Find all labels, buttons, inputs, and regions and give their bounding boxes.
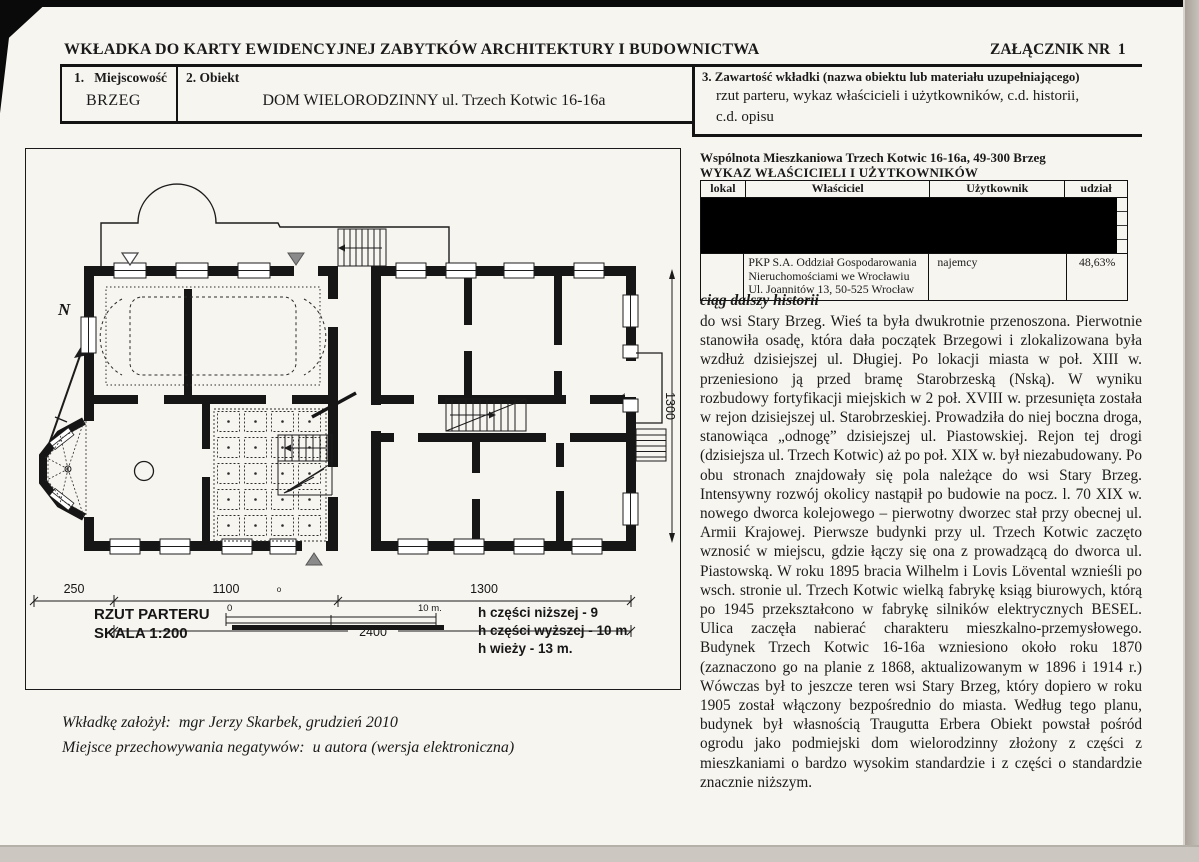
- exterior-stair-right: [636, 429, 666, 461]
- field-contents-label: 3. Zawartość wkładki (nazwa obiektu lub …: [702, 70, 1140, 85]
- field-table-left-border: [60, 67, 62, 121]
- owners-list-title: WYKAZ WŁAŚCICIELI I UŻYTKOWNIKÓW: [700, 165, 978, 181]
- scale-zero-label: 0: [227, 603, 232, 614]
- document-title: WKŁADKA DO KARTY EWIDENCYJNEJ ZABYTKÓW A…: [64, 41, 759, 59]
- field-table-bottom-right: [692, 134, 1142, 137]
- scan-edge-bottom: [0, 847, 1199, 862]
- cell-uzytkownik: najemcy: [929, 254, 1067, 300]
- history-continuation-text: do wsi Stary Brzeg. Wieś ta była dwukrot…: [700, 312, 1142, 792]
- housing-association-line: Wspólnota Mieszkaniowa Trzech Kotwic 16-…: [700, 150, 1046, 166]
- scale-bar: 0 10 m.: [226, 603, 444, 630]
- field-object-value: DOM WIELORODZINNY ul. Trzech Kotwic 16-1…: [176, 92, 692, 110]
- height-lower-part-label: h części niższej - 9: [478, 605, 598, 620]
- field-locality-value: BRZEG: [86, 92, 141, 110]
- field-contents-value-line2: c.d. opisu: [716, 109, 774, 126]
- plan-caption-scale: SKALA 1:200: [94, 625, 188, 642]
- dim-1300-right-label: 1300: [663, 392, 677, 420]
- floor-plan-drawing: N: [26, 149, 680, 689]
- ceiling-ornament-dashed: [100, 287, 326, 385]
- field-contents-value-line1: rzut parteru, wykaz właścicieli i użytko…: [716, 88, 1079, 105]
- right-building-openings: [370, 325, 637, 499]
- attachment-number-label: ZAŁĄCZNIK NR 1: [990, 41, 1126, 59]
- porch-outline: [636, 353, 662, 423]
- octagonal-bay: [43, 421, 86, 517]
- compass-n-label: N: [57, 300, 71, 319]
- redacted-row-line: [1117, 225, 1127, 226]
- redacted-row-line: [1117, 211, 1127, 212]
- negatives-note-line: Miejsce przechowywania negatywów: u auto…: [62, 739, 514, 757]
- field-object-label: 2. Obiekt: [186, 70, 239, 86]
- height-tower-label: h wieży - 13 m.: [478, 641, 573, 656]
- apse-terrace-outline: [101, 184, 449, 266]
- column-header-uzytkownik: Użytkownik: [930, 181, 1065, 197]
- scanned-heritage-card-page: WKŁADKA DO KARTY EWIDENCYJNEJ ZABYTKÓW A…: [0, 0, 1199, 862]
- scan-corner-shadow: [0, 0, 50, 118]
- right-building-windows: [396, 263, 638, 554]
- redacted-row-line: [1117, 239, 1127, 240]
- field-locality-label: 1. Miejscowość: [74, 70, 167, 86]
- dim-250-label: 250: [64, 582, 85, 596]
- column-header-lokal: lokal: [701, 181, 746, 197]
- redacted-block: [701, 198, 1117, 253]
- cell-udzial: 48,63%: [1067, 254, 1127, 300]
- scan-edge-right: [1185, 0, 1199, 862]
- column-header-wlasciciel: Właściciel: [746, 181, 931, 197]
- height-upper-part-label: h części wyższej - 10 m: [478, 623, 627, 638]
- floor-plan-panel: N: [25, 148, 681, 690]
- entrance-marker-bottom-icon: [306, 553, 322, 565]
- degree-mark: o: [277, 585, 282, 594]
- owners-table-header: lokal Właściciel Użytkownik udział: [701, 181, 1127, 198]
- owners-table: lokal Właściciel Użytkownik udział PKP S…: [700, 180, 1128, 301]
- scan-edge-top: [0, 0, 1199, 7]
- stove-circle: [135, 462, 154, 481]
- author-note-line: Wkładkę założył: mgr Jerzy Skarbek, grud…: [62, 714, 398, 732]
- owners-table-redacted-rows: [701, 198, 1127, 253]
- entrance-marker-top-icon: [288, 253, 304, 265]
- field-table-bottom-left: [60, 121, 694, 124]
- coffered-ceiling-grid: [214, 409, 326, 541]
- dim-1300-bottom-label: 1300: [470, 582, 498, 596]
- history-continuation-heading: ciąg dalszy historii: [700, 292, 819, 310]
- dimension-1300-right: 1300: [663, 269, 677, 543]
- scale-ten-label: 10 m.: [418, 603, 442, 614]
- column-header-udzial: udział: [1065, 181, 1127, 197]
- header-rule: [60, 64, 1142, 67]
- exterior-stair-top: [338, 229, 386, 266]
- dim-1100-label: 1100: [213, 582, 240, 596]
- plan-caption-title: RZUT PARTERU: [94, 606, 210, 623]
